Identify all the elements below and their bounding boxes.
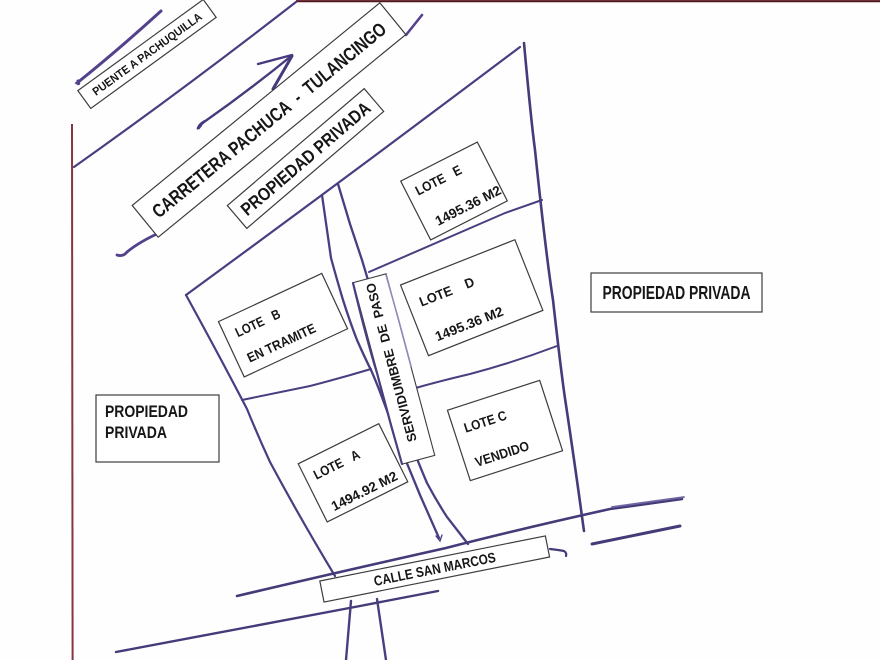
svg-text:PROPIEDAD PRIVADA: PROPIEDAD PRIVADA bbox=[603, 283, 751, 303]
svg-text:PRIVADA: PRIVADA bbox=[105, 424, 167, 442]
svg-text:PROPIEDAD: PROPIEDAD bbox=[105, 403, 188, 421]
